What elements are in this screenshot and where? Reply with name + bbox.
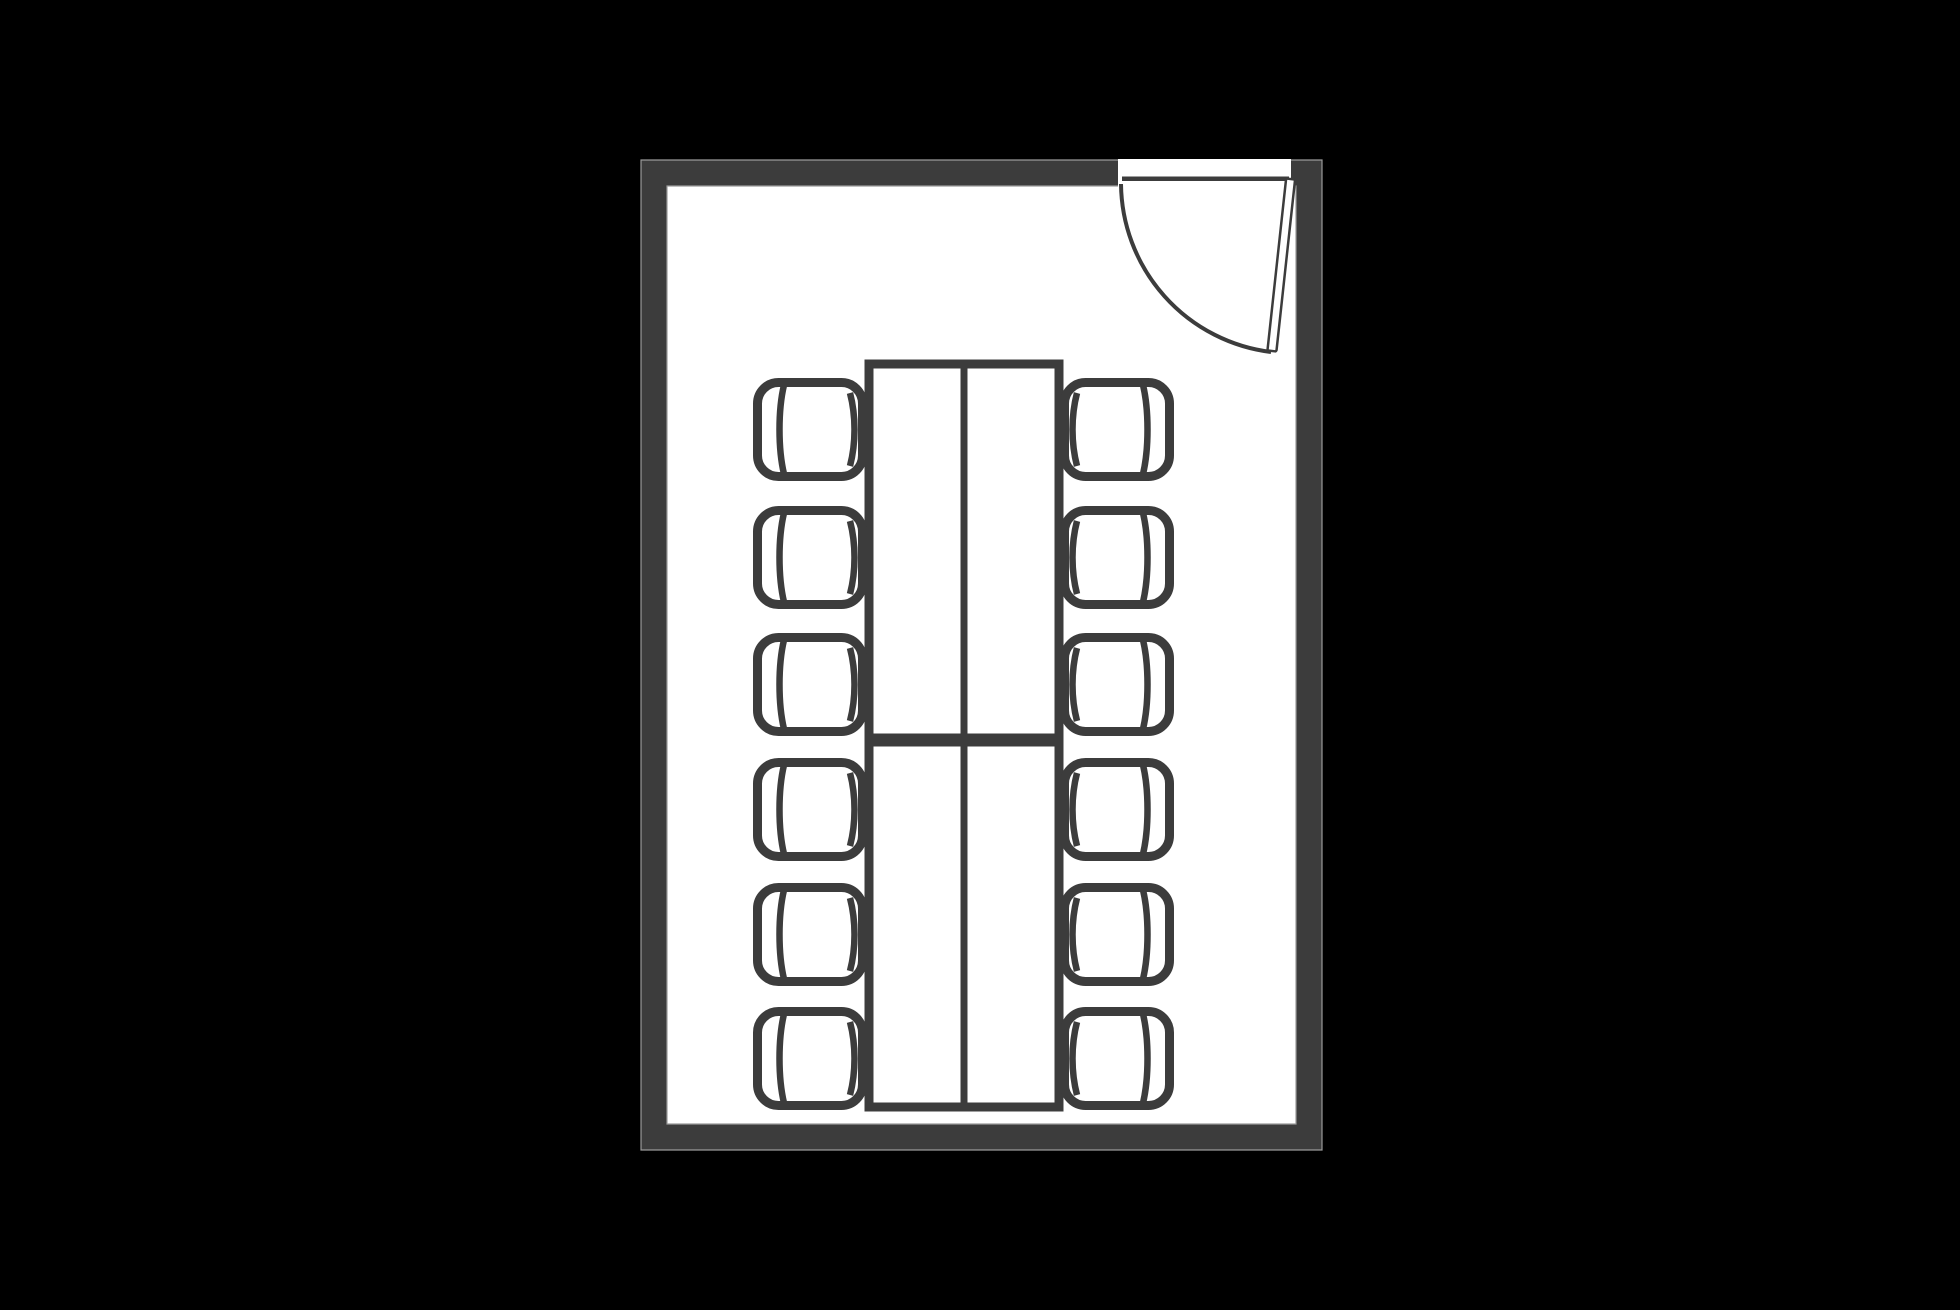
door-opening — [1118, 159, 1291, 188]
floor-plan-svg — [0, 0, 1960, 1310]
chair-right-6-shell — [1065, 1012, 1170, 1106]
chair-left-3 — [758, 638, 863, 732]
chair-right-5-shell — [1065, 888, 1170, 982]
chair-right-3 — [1065, 638, 1170, 732]
chair-left-4-shell — [758, 763, 863, 857]
chair-right-1-shell — [1065, 383, 1170, 477]
chair-left-6 — [758, 1012, 863, 1106]
chair-left-1 — [758, 383, 863, 477]
chair-left-2 — [758, 511, 863, 605]
chair-left-2-shell — [758, 511, 863, 605]
chair-right-2 — [1065, 511, 1170, 605]
chair-left-1-shell — [758, 383, 863, 477]
tables-group — [869, 364, 1059, 1107]
chair-right-4 — [1065, 763, 1170, 857]
chair-right-2-shell — [1065, 511, 1170, 605]
floor-plan-canvas — [0, 0, 1960, 1310]
chair-left-3-shell — [758, 638, 863, 732]
chair-right-5 — [1065, 888, 1170, 982]
chair-right-1 — [1065, 383, 1170, 477]
chair-left-5-shell — [758, 888, 863, 982]
door-frame-line — [1122, 177, 1289, 182]
chair-left-5 — [758, 888, 863, 982]
chair-right-6 — [1065, 1012, 1170, 1106]
chair-left-6-shell — [758, 1012, 863, 1106]
chair-right-4-shell — [1065, 763, 1170, 857]
chair-left-4 — [758, 763, 863, 857]
chair-right-3-shell — [1065, 638, 1170, 732]
